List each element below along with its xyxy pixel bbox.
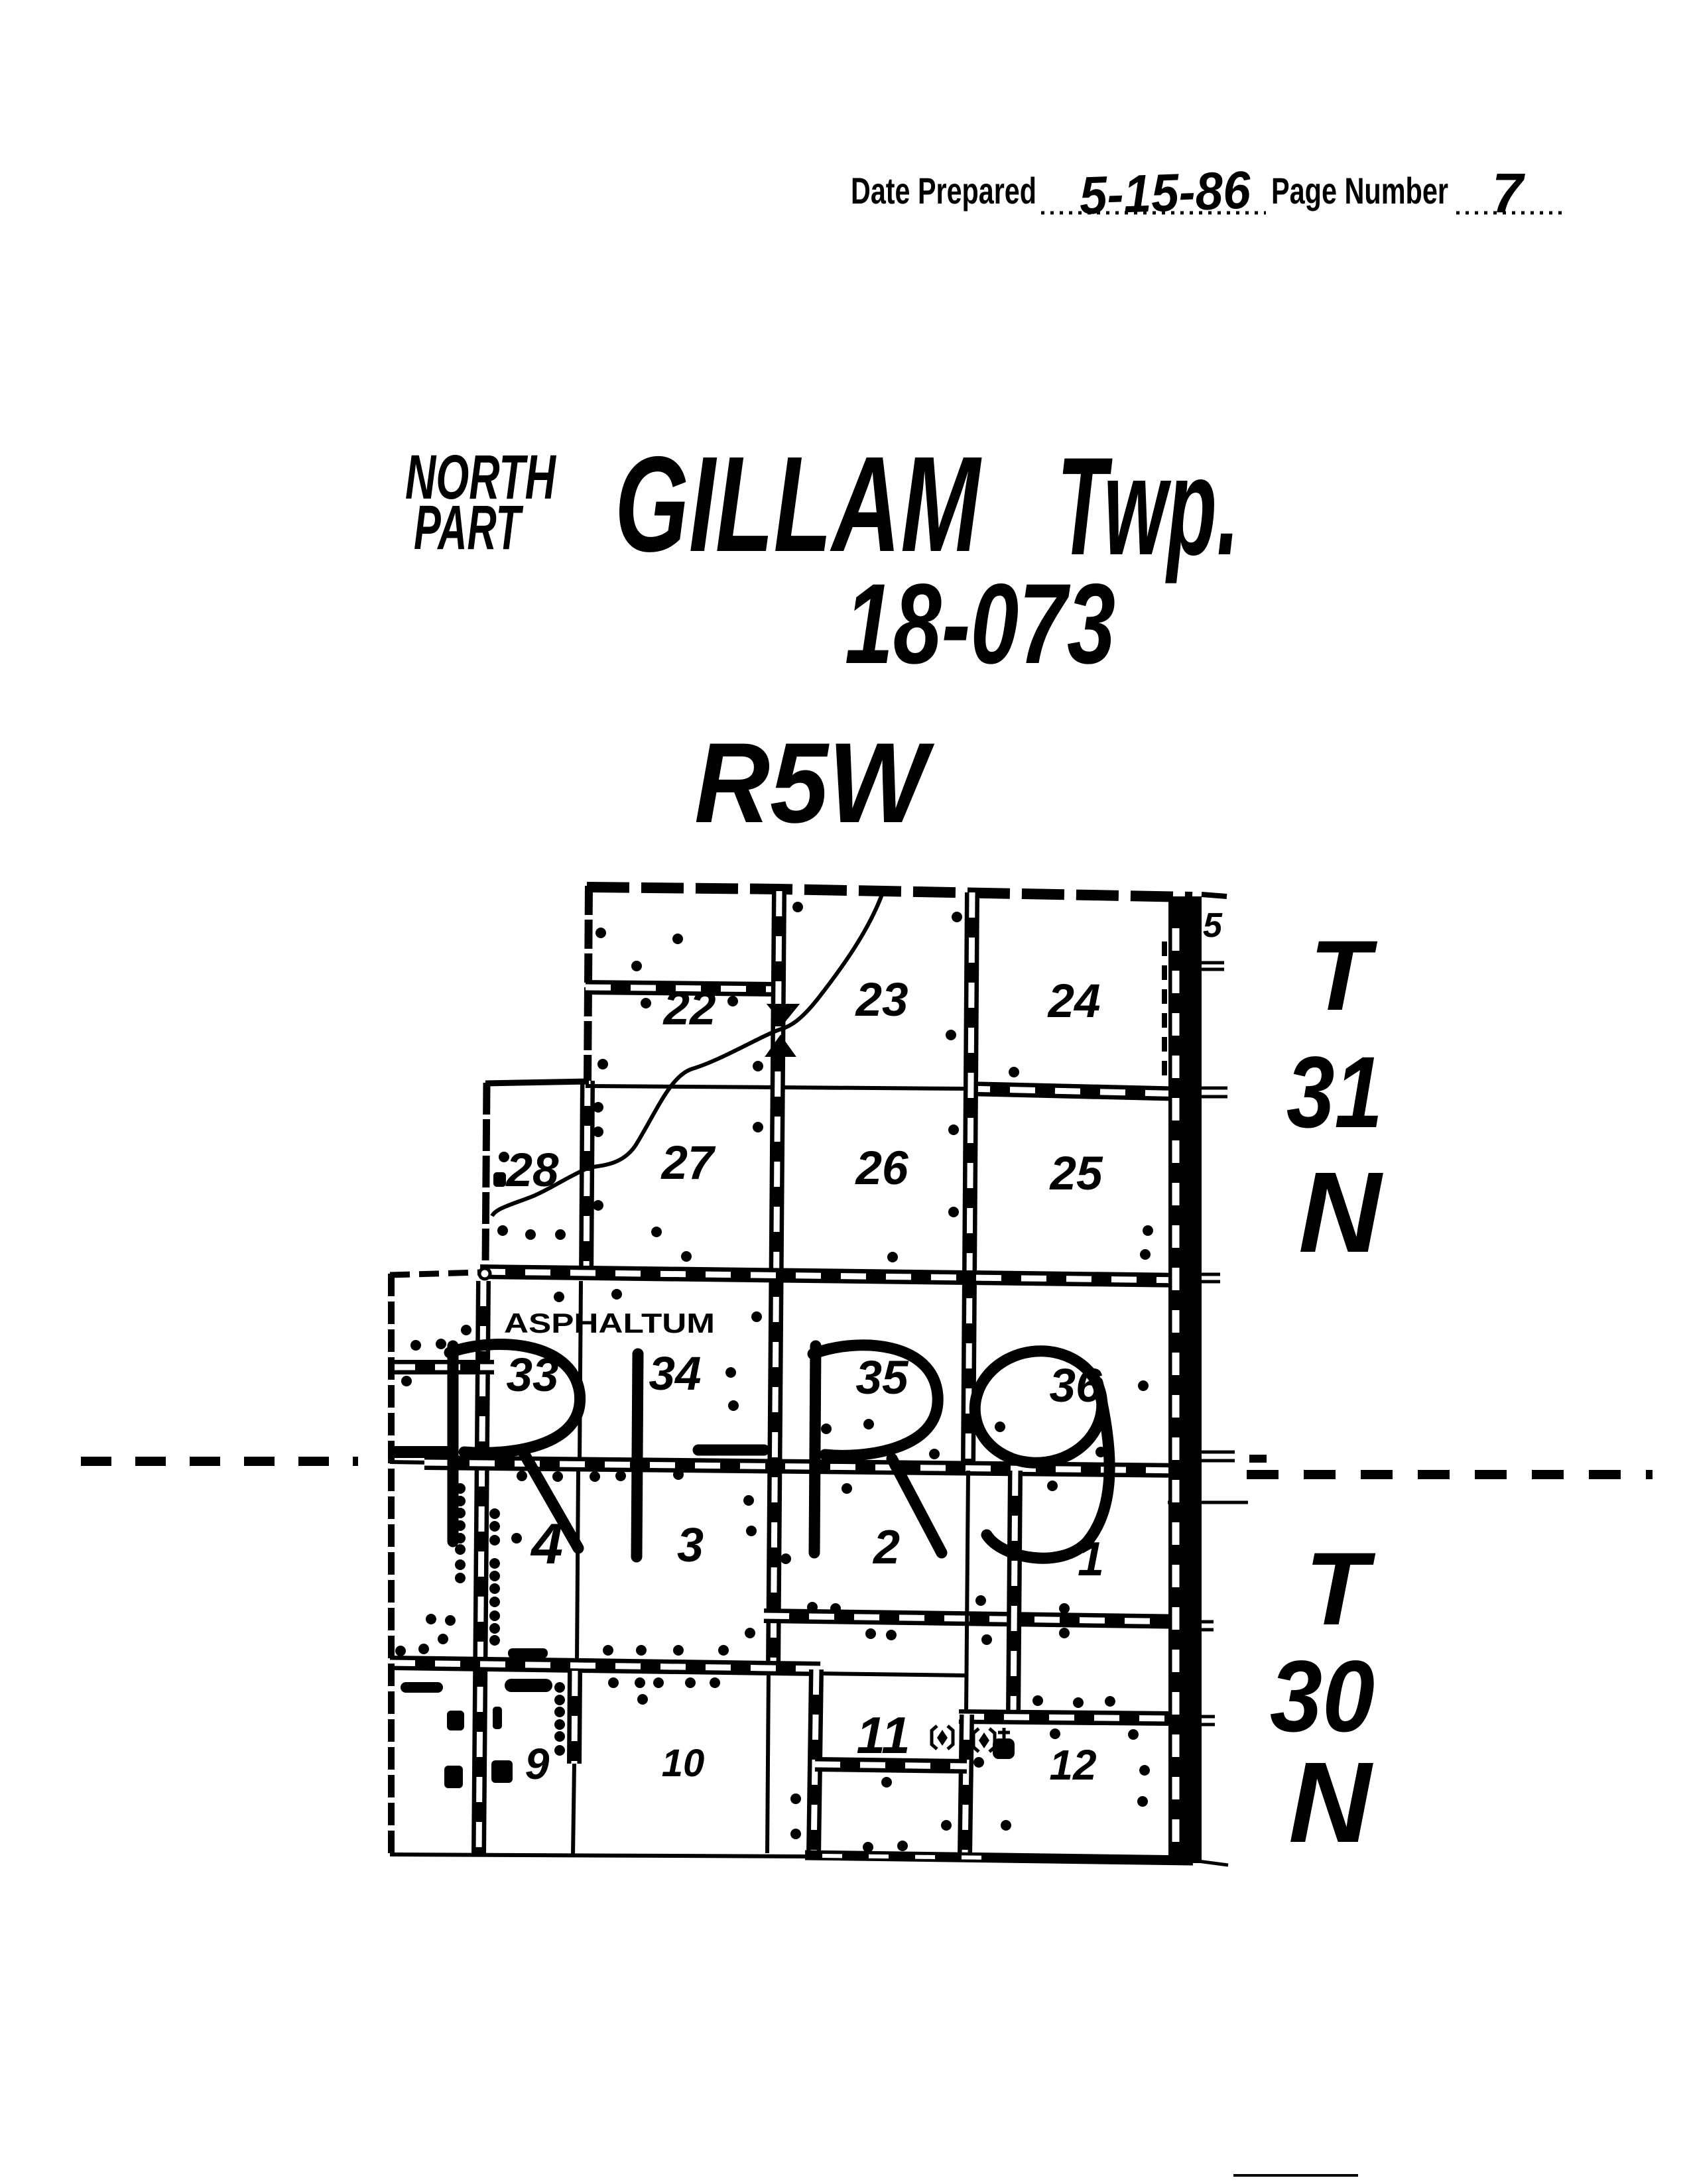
svg-text:N: N — [1288, 1738, 1373, 1866]
svg-text:5-15-86: 5-15-86 — [1078, 160, 1251, 225]
svg-text:R5W: R5W — [694, 719, 935, 847]
svg-text:Date Prepared: Date Prepared — [851, 170, 1036, 212]
svg-text:T: T — [1305, 1532, 1376, 1647]
svg-text:7: 7 — [1492, 162, 1525, 224]
svg-text:27: 27 — [660, 1137, 716, 1189]
svg-text:3: 3 — [677, 1519, 704, 1572]
svg-text:24: 24 — [1047, 975, 1101, 1028]
svg-text:28: 28 — [505, 1144, 559, 1197]
svg-text:31: 31 — [1286, 1036, 1383, 1149]
svg-text:5: 5 — [1203, 906, 1223, 945]
svg-text:30: 30 — [1270, 1640, 1375, 1753]
svg-text:GILLAM: GILLAM — [615, 428, 982, 580]
svg-text:ASPHALTUM: ASPHALTUM — [504, 1307, 715, 1339]
svg-text:26: 26 — [855, 1142, 908, 1195]
svg-text:Page Number: Page Number — [1271, 170, 1448, 212]
svg-text:N: N — [1298, 1148, 1383, 1276]
svg-text:35: 35 — [856, 1352, 909, 1404]
svg-text:9: 9 — [525, 1739, 550, 1788]
svg-text:10: 10 — [662, 1742, 705, 1785]
svg-text:23: 23 — [855, 974, 908, 1026]
svg-text:18-073: 18-073 — [845, 560, 1115, 688]
svg-text:25: 25 — [1049, 1148, 1103, 1200]
svg-text:22: 22 — [662, 983, 716, 1035]
svg-text:T: T — [1310, 920, 1378, 1031]
svg-text:34: 34 — [649, 1348, 702, 1400]
svg-text:12: 12 — [1049, 1741, 1096, 1789]
svg-text:PART: PART — [414, 493, 523, 563]
svg-text:11: 11 — [857, 1706, 910, 1764]
svg-text:2: 2 — [872, 1521, 900, 1574]
